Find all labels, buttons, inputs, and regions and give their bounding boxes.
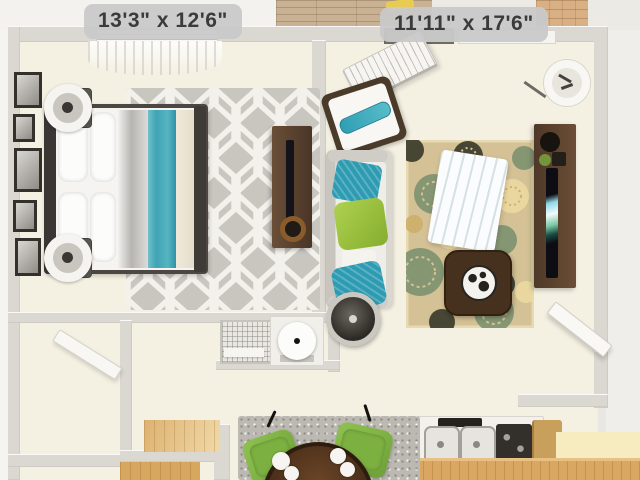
- living-room-dimensions-label: 11'11" x 17'6": [380, 7, 548, 42]
- nightstand-lamp-bottom: [44, 234, 92, 282]
- bedroom-curtains: [88, 41, 222, 75]
- bed-footboard: [194, 106, 206, 272]
- sofa-pillow-lime: [333, 197, 389, 251]
- tv-reflection: [546, 168, 558, 278]
- dresser: [272, 126, 312, 248]
- wall-art-frame: [13, 114, 35, 142]
- bedroom-dimensions-label: 13'3" x 12'6": [84, 4, 242, 39]
- bed-pillow: [90, 192, 116, 262]
- exterior-right: [606, 30, 640, 480]
- media-console: [534, 124, 576, 288]
- ottoman-coffee-table: [444, 250, 512, 316]
- throw-blanket: [427, 149, 509, 252]
- toilet-bowl: [278, 322, 316, 360]
- wall-hall-vertical: [120, 320, 132, 466]
- teal-bed-runner: [148, 110, 176, 268]
- wall-art-frame: [14, 72, 42, 108]
- sofa-arm-top: [328, 150, 388, 162]
- speaker: [540, 132, 560, 152]
- dresser-plant: [280, 216, 306, 242]
- wall-kitchen-top: [518, 394, 608, 407]
- tv-screen: [546, 168, 558, 278]
- nightstand-lamp-top: [44, 84, 92, 132]
- floorplan-canvas: 13'3" x 12'6" 11'11" x 17'6": [0, 0, 640, 480]
- round-side-table: [544, 60, 590, 106]
- toilet-flush: [294, 338, 300, 344]
- hall-wood-floor: [120, 462, 200, 480]
- wall-art-frame: [13, 200, 37, 232]
- wall-art-frame: [14, 148, 42, 192]
- cooktop: [496, 424, 532, 462]
- plate: [340, 462, 355, 477]
- sofa: [326, 150, 392, 308]
- wall-hall-bottom: [8, 454, 132, 467]
- plate: [284, 466, 299, 480]
- console-box: [552, 152, 566, 166]
- breakfast-bar: [414, 458, 640, 480]
- tv-on-dresser: [286, 140, 294, 224]
- end-table-knob: [349, 315, 357, 323]
- side-table-decor: [558, 74, 572, 84]
- shower-ledge: [224, 348, 264, 357]
- bed-foot-throw: [176, 110, 196, 268]
- console-plant: [539, 154, 551, 166]
- wall-art-frame: [15, 238, 41, 276]
- decor-bowl: [461, 265, 497, 301]
- hall-wood-floor: [144, 420, 220, 452]
- duvet-fold: [118, 110, 148, 268]
- round-end-table: [326, 292, 380, 346]
- exterior-left: [0, 30, 8, 480]
- toilet-alcove: [270, 316, 324, 366]
- shower: [220, 320, 272, 364]
- bed-pillow: [90, 112, 116, 182]
- side-table-decor: [561, 83, 573, 90]
